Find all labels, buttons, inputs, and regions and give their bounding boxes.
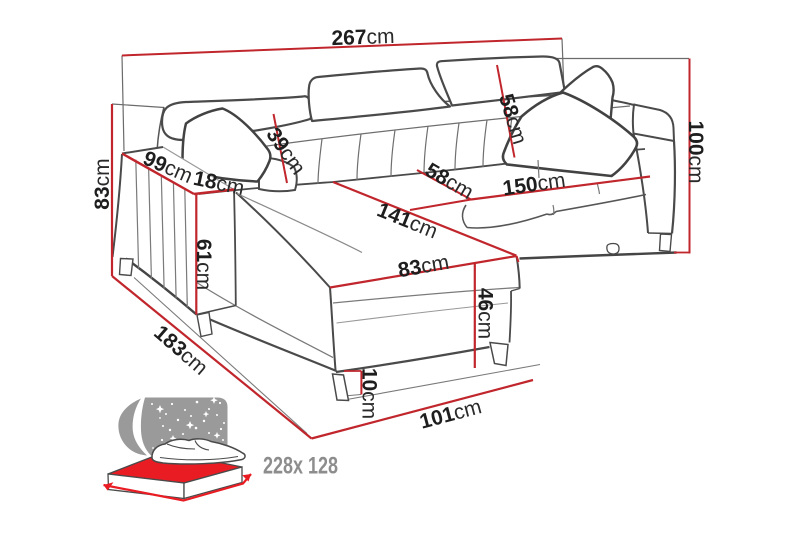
svg-text:61cm: 61cm xyxy=(192,239,215,290)
svg-text:267cm: 267cm xyxy=(331,25,395,50)
svg-text:10cm: 10cm xyxy=(358,368,381,419)
svg-text:46cm: 46cm xyxy=(474,288,497,339)
svg-text:100cm: 100cm xyxy=(684,120,707,183)
svg-text:228x 128: 228x 128 xyxy=(263,453,338,480)
svg-text:83cm: 83cm xyxy=(91,158,114,209)
